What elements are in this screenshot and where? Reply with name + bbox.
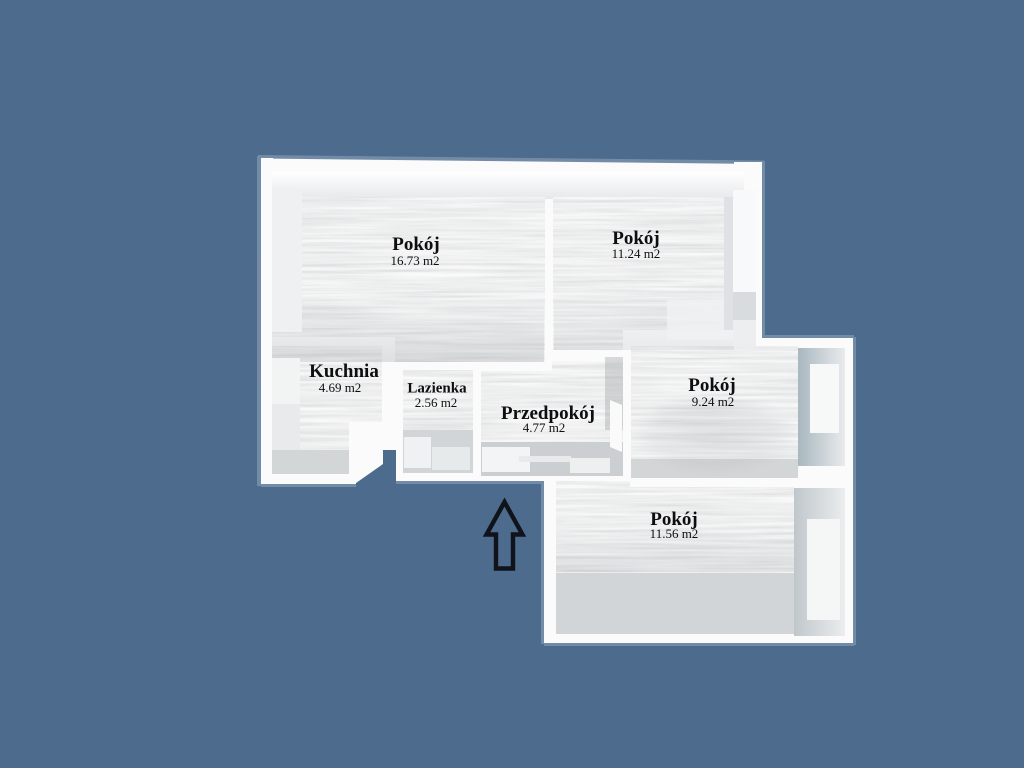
- svg-text:9.24 m2: 9.24 m2: [692, 394, 735, 409]
- svg-text:2.56 m2: 2.56 m2: [415, 395, 458, 410]
- svg-text:Pokój: Pokój: [392, 234, 440, 255]
- svg-text:Pokój: Pokój: [688, 375, 736, 396]
- svg-text:4.77 m2: 4.77 m2: [523, 420, 566, 435]
- svg-text:16.73 m2: 16.73 m2: [390, 253, 439, 268]
- svg-text:Kuchnia: Kuchnia: [309, 361, 379, 382]
- svg-text:11.56 m2: 11.56 m2: [650, 526, 699, 541]
- svg-text:11.24 m2: 11.24 m2: [612, 246, 661, 261]
- svg-text:4.69 m2: 4.69 m2: [319, 380, 362, 395]
